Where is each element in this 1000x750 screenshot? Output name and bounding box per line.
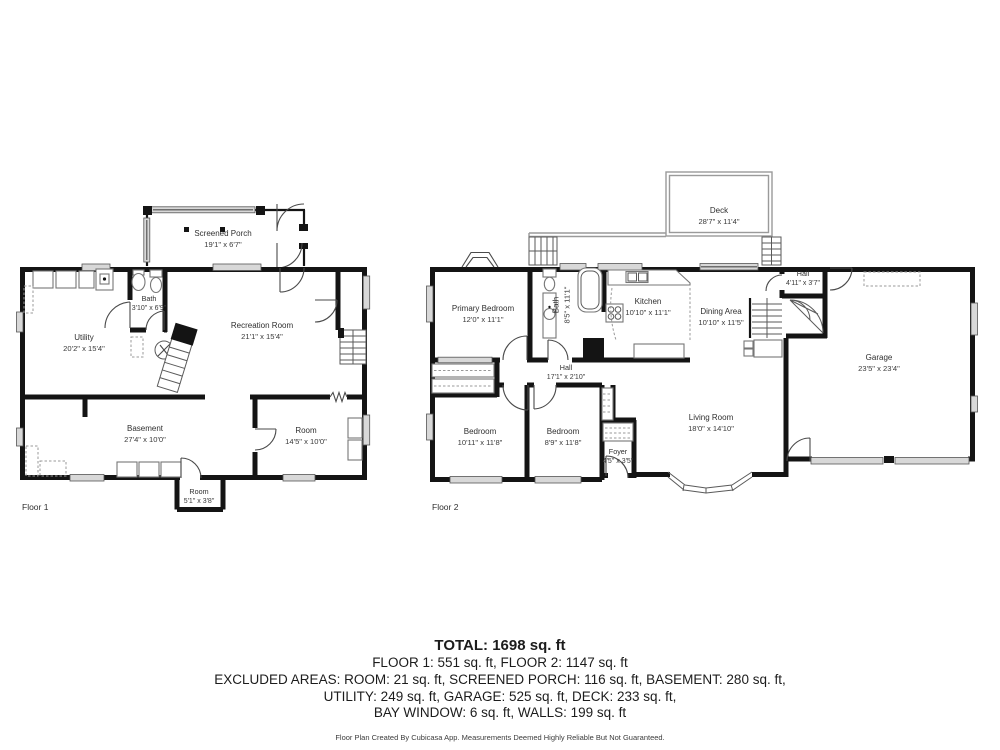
area-summary: TOTAL: 1698 sq. ft FLOOR 1: 551 sq. ft, … (0, 636, 1000, 742)
floor1-plan (17, 204, 370, 510)
deck-stairs-right-icon (762, 237, 781, 265)
room-label-basement: Basement 27'4" x 10'0" (124, 424, 166, 445)
floor2-walls (430, 267, 975, 482)
floor1-walls (20, 267, 367, 510)
floor1-windows (17, 264, 370, 481)
room-label-bedroom1: Bedroom 10'11" x 11'8" (458, 427, 503, 448)
room-label-hall: Hall 17'1" x 2'10" (547, 363, 585, 382)
laundry-appliance-icons (33, 269, 113, 290)
room-label-garage: Garage 23'5" x 23'4" (858, 353, 900, 374)
room-label-deck: Deck 28'7" x 11'4" (698, 206, 739, 227)
stove-icon (606, 304, 623, 322)
basement-stairs-icon (156, 323, 197, 393)
floor1-tag: Floor 1 (22, 502, 48, 512)
room-label-room-small: Room 5'1" x 3'8" (184, 487, 215, 506)
room-label-recreation: Recreation Room 21'1" x 15'4" (231, 321, 293, 342)
room-label-utility: Utility 20'2" x 15'4" (63, 333, 105, 354)
hall-closet-shelves (432, 357, 494, 393)
utility-dashed-fixture (24, 286, 33, 313)
utility-dashed-fixture-2 (131, 337, 143, 357)
recreation-stairs-icon (338, 328, 366, 364)
floor2-tag: Floor 2 (432, 502, 458, 512)
garage-storage-dashed (864, 272, 920, 286)
disclaimer-text: Floor Plan Created By Cubicasa App. Meas… (0, 733, 1000, 742)
floor-plan-page: Screened Porch 19'1" x 6'7" Bath 3'10" x… (0, 0, 1000, 750)
excluded-areas-text-3: BAY WINDOW: 6 sq. ft, WALLS: 199 sq. ft (0, 705, 1000, 722)
primary-bay-window (462, 253, 498, 268)
linen-closet-shelves (602, 388, 633, 441)
room-label-kitchen: Kitchen 10'10" x 11'1" (625, 297, 670, 318)
wall-break-symbol (330, 393, 347, 402)
deck-outline (529, 172, 781, 265)
room-label-living: Living Room 18'0" x 14'10" (688, 413, 734, 434)
dining-stairs-icon (744, 298, 782, 357)
room-label-hall-small: Hall 4'11" x 3'7" (786, 269, 820, 288)
floor-areas-text: FLOOR 1: 551 sq. ft, FLOOR 2: 1147 sq. f… (0, 655, 1000, 672)
excluded-areas-text-1: EXCLUDED AREAS: ROOM: 21 sq. ft, SCREENE… (0, 672, 1000, 689)
living-room-bay-window (668, 472, 752, 494)
room-label-primary-bedroom: Primary Bedroom 12'0" x 11'1" (452, 304, 514, 325)
basement-door-arcs (181, 429, 276, 478)
room-label-screened-porch: Screened Porch 19'1" x 6'7" (194, 229, 251, 250)
excluded-areas-text-2: UTILITY: 249 sq. ft, GARAGE: 525 sq. ft,… (0, 689, 1000, 706)
room-label-dining: Dining Area 10'10" x 11'5" (698, 307, 743, 328)
room-label-bath1: Bath 3'10" x 6'9" (132, 294, 167, 313)
recreation-door-arcs (280, 268, 337, 322)
total-area-text: TOTAL: 1698 sq. ft (0, 636, 1000, 655)
room-label-foyer: Foyer 4'5" x 3'5" (603, 447, 634, 466)
bathroom1-fixtures (132, 270, 162, 293)
room-label-bedroom2: Bedroom 8'9" x 11'8" (545, 427, 582, 448)
room-label-bath2: Bath 8'5" x 11'1" (552, 287, 573, 324)
deck-stairs-left-icon (529, 237, 557, 265)
room-label-room: Room 14'5" x 10'0" (285, 426, 327, 447)
porch-door-arcs (277, 204, 304, 268)
